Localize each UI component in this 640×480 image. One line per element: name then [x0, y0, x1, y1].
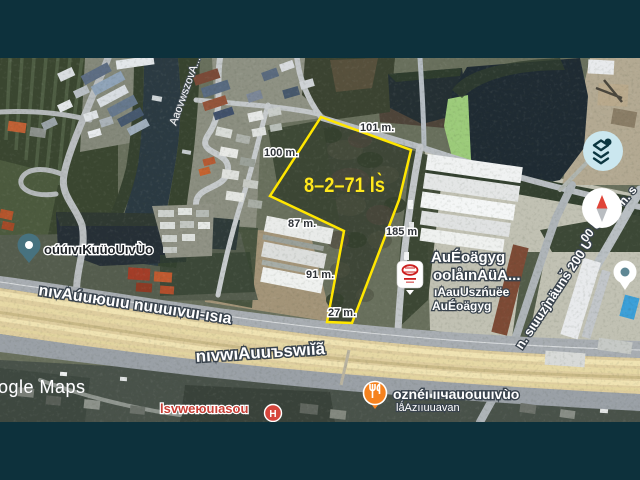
svg-text:lǻAzııuuavan: lǻAzııuuavan	[396, 401, 460, 414]
svg-text:oznéı ııчauouuıvùo: oznéı ııчauouuıvùo	[393, 386, 519, 402]
svg-text:8–2–71 ls̀: 8–2–71 ls̀	[304, 173, 385, 197]
svg-text:oúúıvıKuüoUıvÙo: oúúıvıKuüoUıvÙo	[44, 242, 153, 257]
svg-text:AuÉoägyg: AuÉoägyg	[432, 298, 491, 313]
svg-text:H: H	[269, 409, 276, 420]
svg-text:185 m: 185 m	[386, 226, 417, 238]
svg-text:oolåınAüA...: oolåınAüA...	[433, 267, 521, 284]
svg-text:87 m.: 87 m.	[288, 218, 316, 230]
svg-text:ıAauUszńuёe: ıAauUszńuёe	[434, 285, 510, 299]
svg-text:lsvweюuıasou: lsvweюuıasou	[160, 401, 248, 416]
svg-text:101 m.: 101 m.	[360, 122, 394, 134]
svg-text:AuÉoägyg: AuÉoägyg	[431, 249, 505, 266]
svg-text:27 m.: 27 m.	[328, 307, 356, 319]
svg-text:100 m.: 100 m.	[264, 147, 298, 159]
svg-text:91 m.: 91 m.	[306, 269, 334, 281]
svg-text:Google Maps: Google Maps	[0, 377, 86, 397]
